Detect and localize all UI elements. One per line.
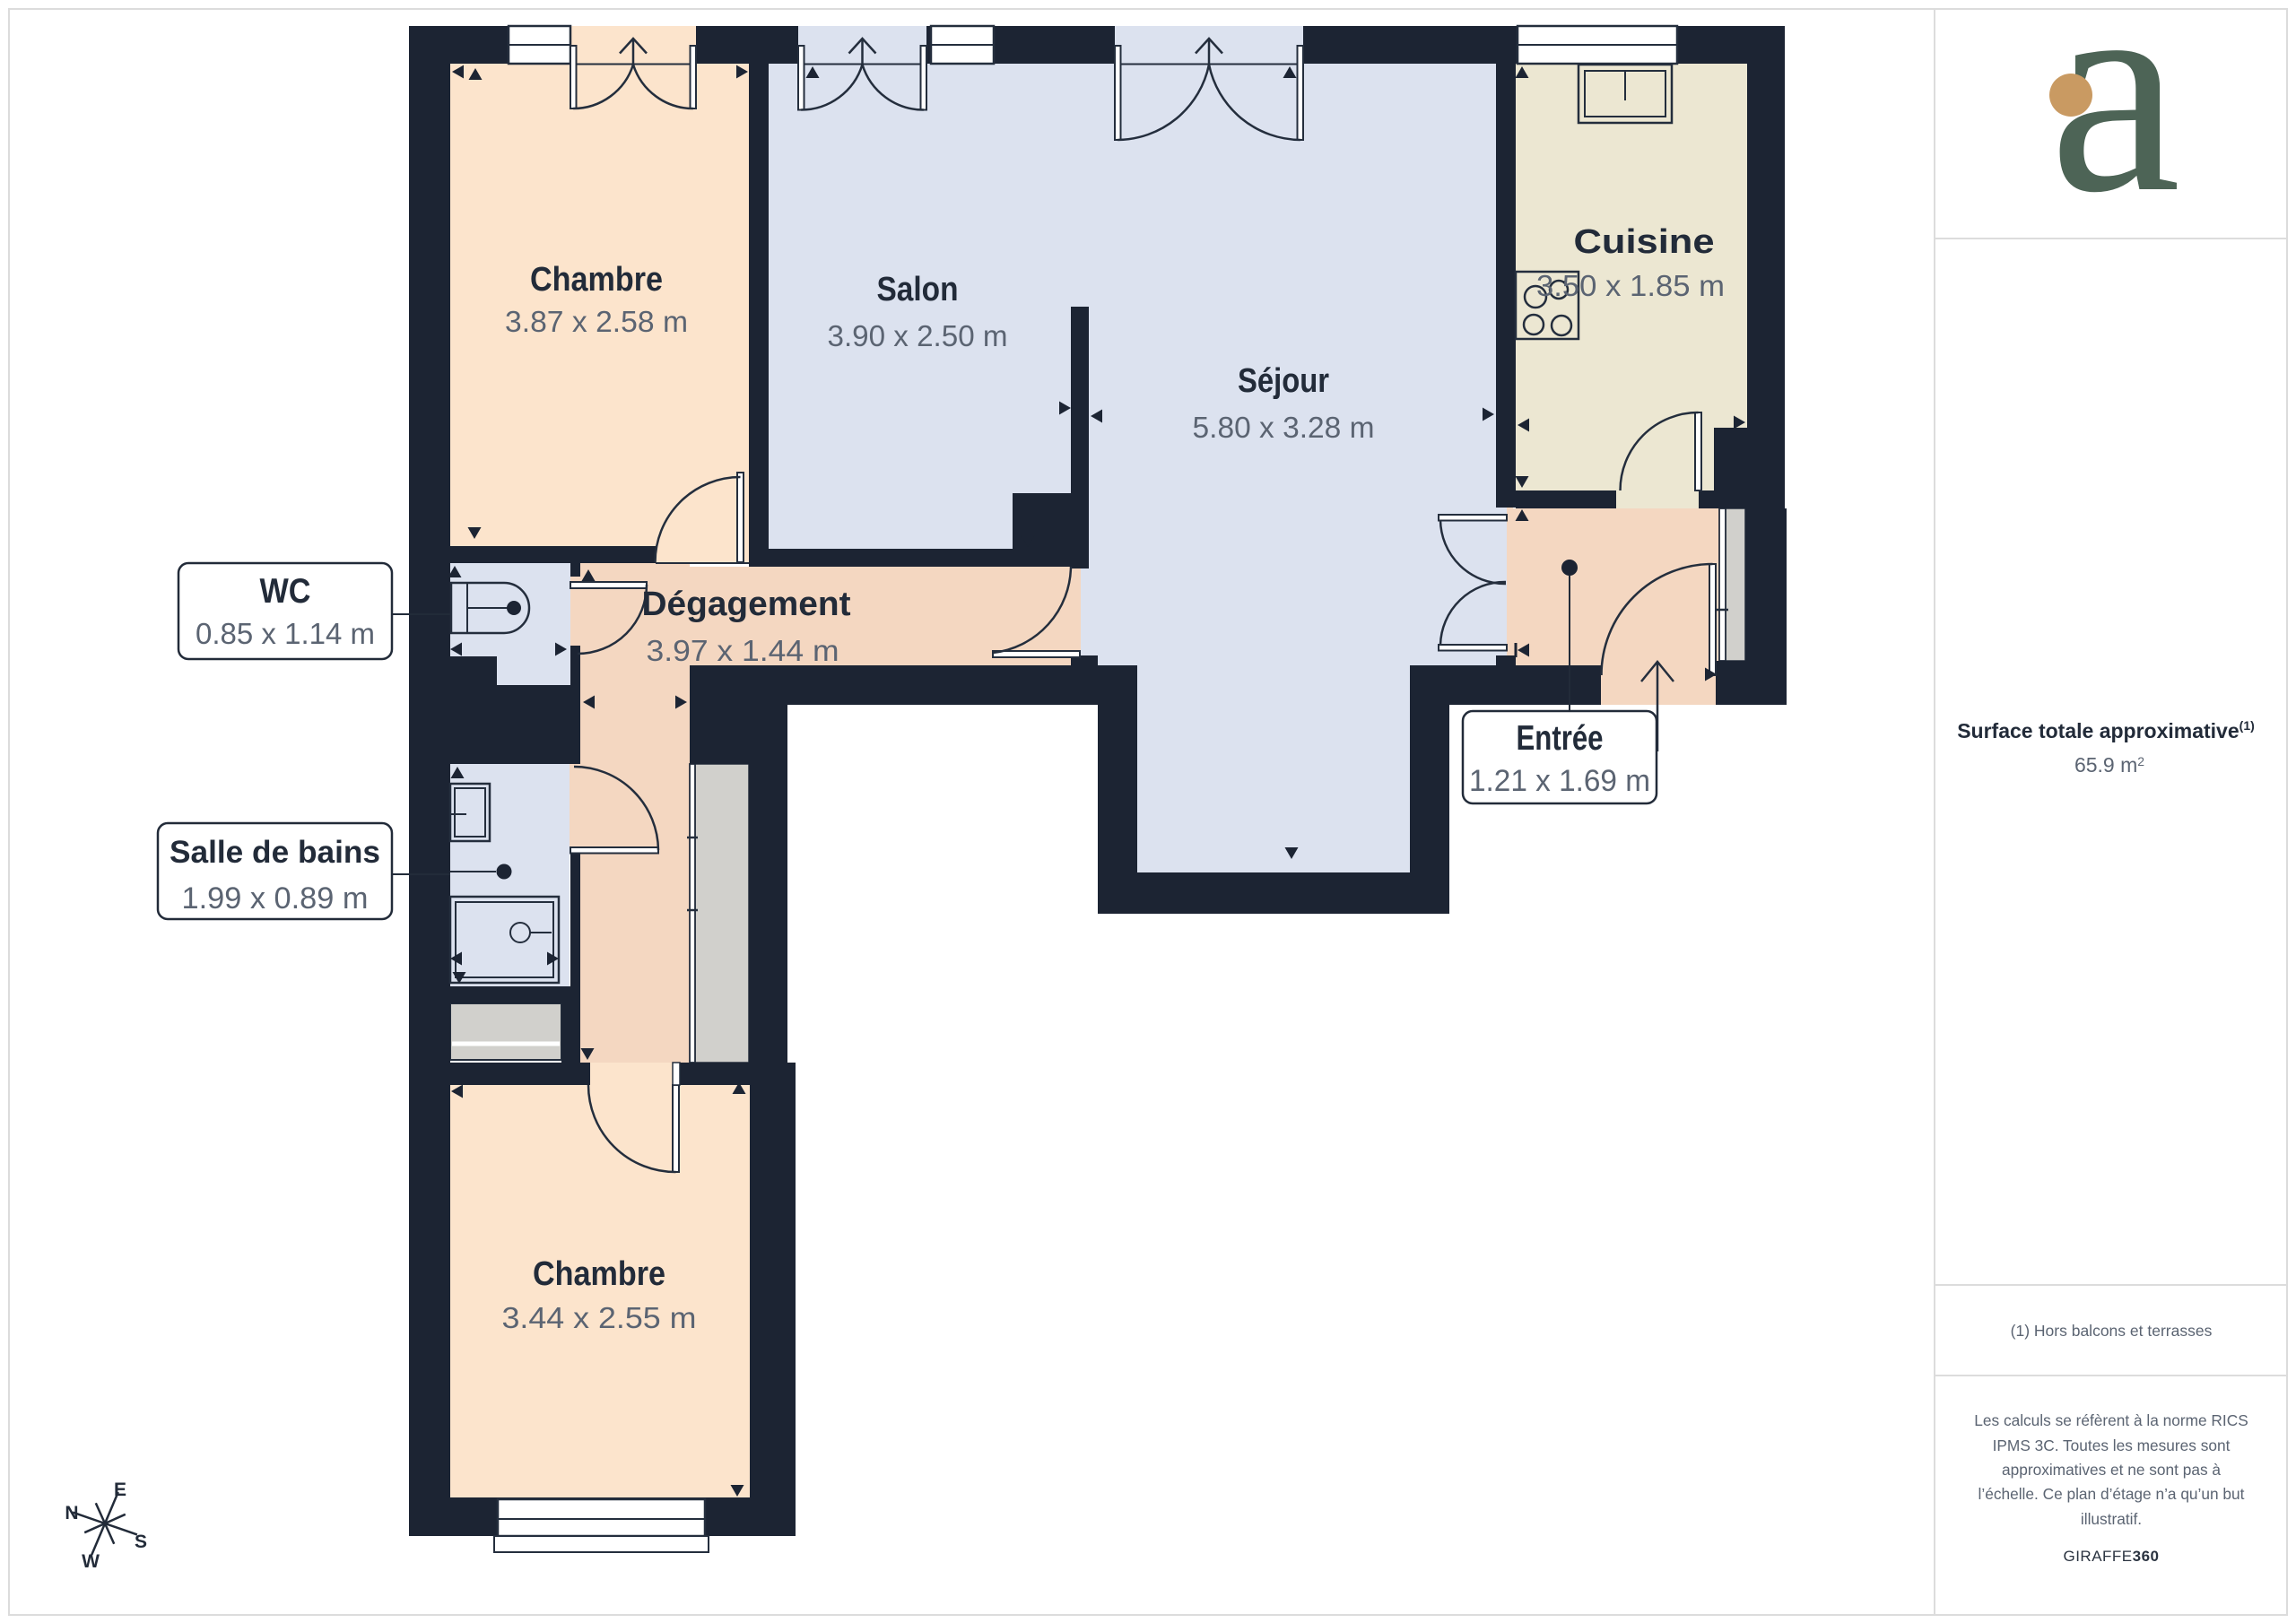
svg-text:a: a bbox=[2049, 0, 2180, 254]
svg-text:approximatives et ne sont pas: approximatives et ne sont pas à bbox=[2002, 1461, 2221, 1479]
svg-text:E: E bbox=[114, 1480, 126, 1500]
svg-text:WC: WC bbox=[260, 572, 311, 611]
svg-text:3.97 x 1.44 m: 3.97 x 1.44 m bbox=[647, 634, 839, 667]
svg-text:1.99 x 0.89 m: 1.99 x 0.89 m bbox=[182, 881, 369, 916]
svg-text:GIRAFFE360: GIRAFFE360 bbox=[2063, 1548, 2159, 1565]
svg-text:l’échelle. Ce plan d’étage n’a: l’échelle. Ce plan d’étage n’a qu’un but bbox=[1979, 1485, 2245, 1503]
svg-text:3.90 x 2.50 m: 3.90 x 2.50 m bbox=[828, 319, 1008, 352]
svg-text:S: S bbox=[135, 1532, 147, 1552]
svg-text:65.9 m2: 65.9 m2 bbox=[2074, 753, 2144, 777]
svg-text:Les calculs se réfèrent à la n: Les calculs se réfèrent à la norme RICS bbox=[1974, 1411, 2248, 1429]
svg-text:Surface totale approximative(1: Surface totale approximative(1) bbox=[1957, 718, 2255, 742]
svg-text:1.21 x 1.69 m: 1.21 x 1.69 m bbox=[1469, 764, 1650, 798]
svg-text:3.50 x 1.85 m: 3.50 x 1.85 m bbox=[1536, 269, 1725, 302]
svg-text:illustratif.: illustratif. bbox=[2081, 1510, 2142, 1528]
svg-text:Salle de bains: Salle de bains bbox=[170, 835, 380, 870]
svg-text:Chambre: Chambre bbox=[530, 261, 663, 299]
svg-text:5.80 x 3.28 m: 5.80 x 3.28 m bbox=[1193, 411, 1375, 444]
svg-text:N: N bbox=[65, 1503, 78, 1523]
svg-text:Cuisine: Cuisine bbox=[1574, 223, 1715, 261]
svg-text:IPMS 3C. Toutes les mesures so: IPMS 3C. Toutes les mesures sont bbox=[1993, 1436, 2231, 1454]
svg-text:Entrée: Entrée bbox=[1517, 719, 1604, 758]
svg-text:W: W bbox=[82, 1551, 100, 1572]
svg-text:3.87 x 2.58 m: 3.87 x 2.58 m bbox=[505, 305, 688, 338]
svg-text:3.44 x 2.55 m: 3.44 x 2.55 m bbox=[502, 1301, 697, 1334]
svg-text:Chambre: Chambre bbox=[533, 1255, 665, 1293]
svg-text:(1) Hors balcons et terrasses: (1) Hors balcons et terrasses bbox=[2011, 1322, 2213, 1340]
svg-text:Dégagement: Dégagement bbox=[642, 586, 851, 623]
svg-text:0.85 x 1.14 m: 0.85 x 1.14 m bbox=[196, 617, 375, 650]
svg-text:Salon: Salon bbox=[877, 271, 959, 308]
svg-text:Séjour: Séjour bbox=[1238, 362, 1329, 400]
